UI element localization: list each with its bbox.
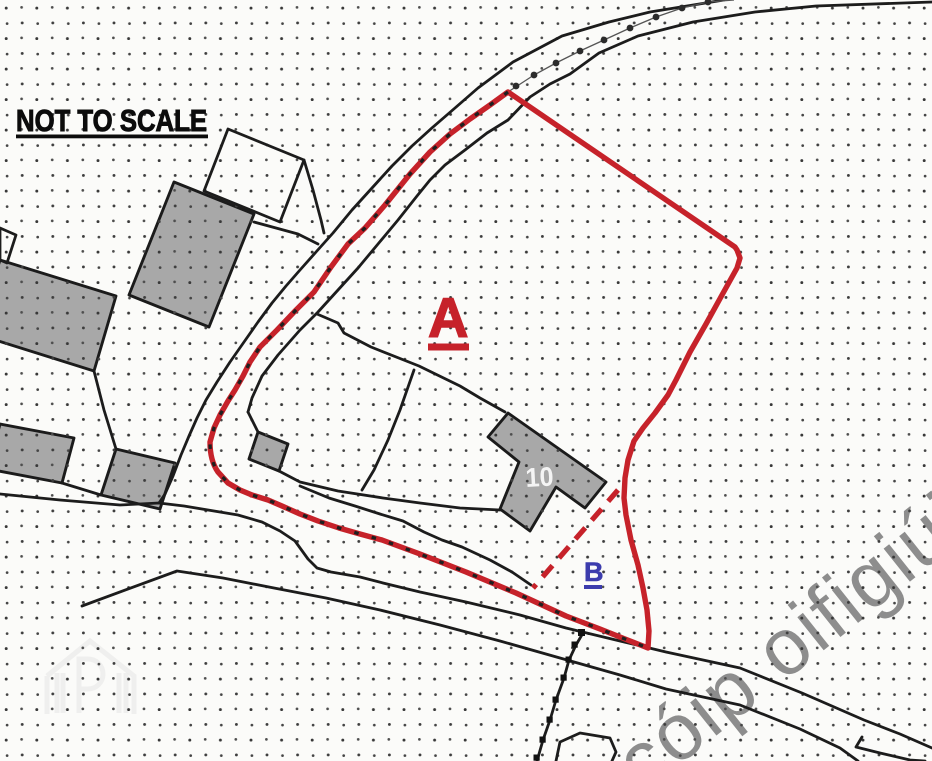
svg-text:10: 10 xyxy=(525,462,555,493)
svg-text:B: B xyxy=(584,557,604,587)
svg-text:NOT TO SCALE: NOT TO SCALE xyxy=(16,104,207,138)
svg-text:A: A xyxy=(428,286,468,349)
